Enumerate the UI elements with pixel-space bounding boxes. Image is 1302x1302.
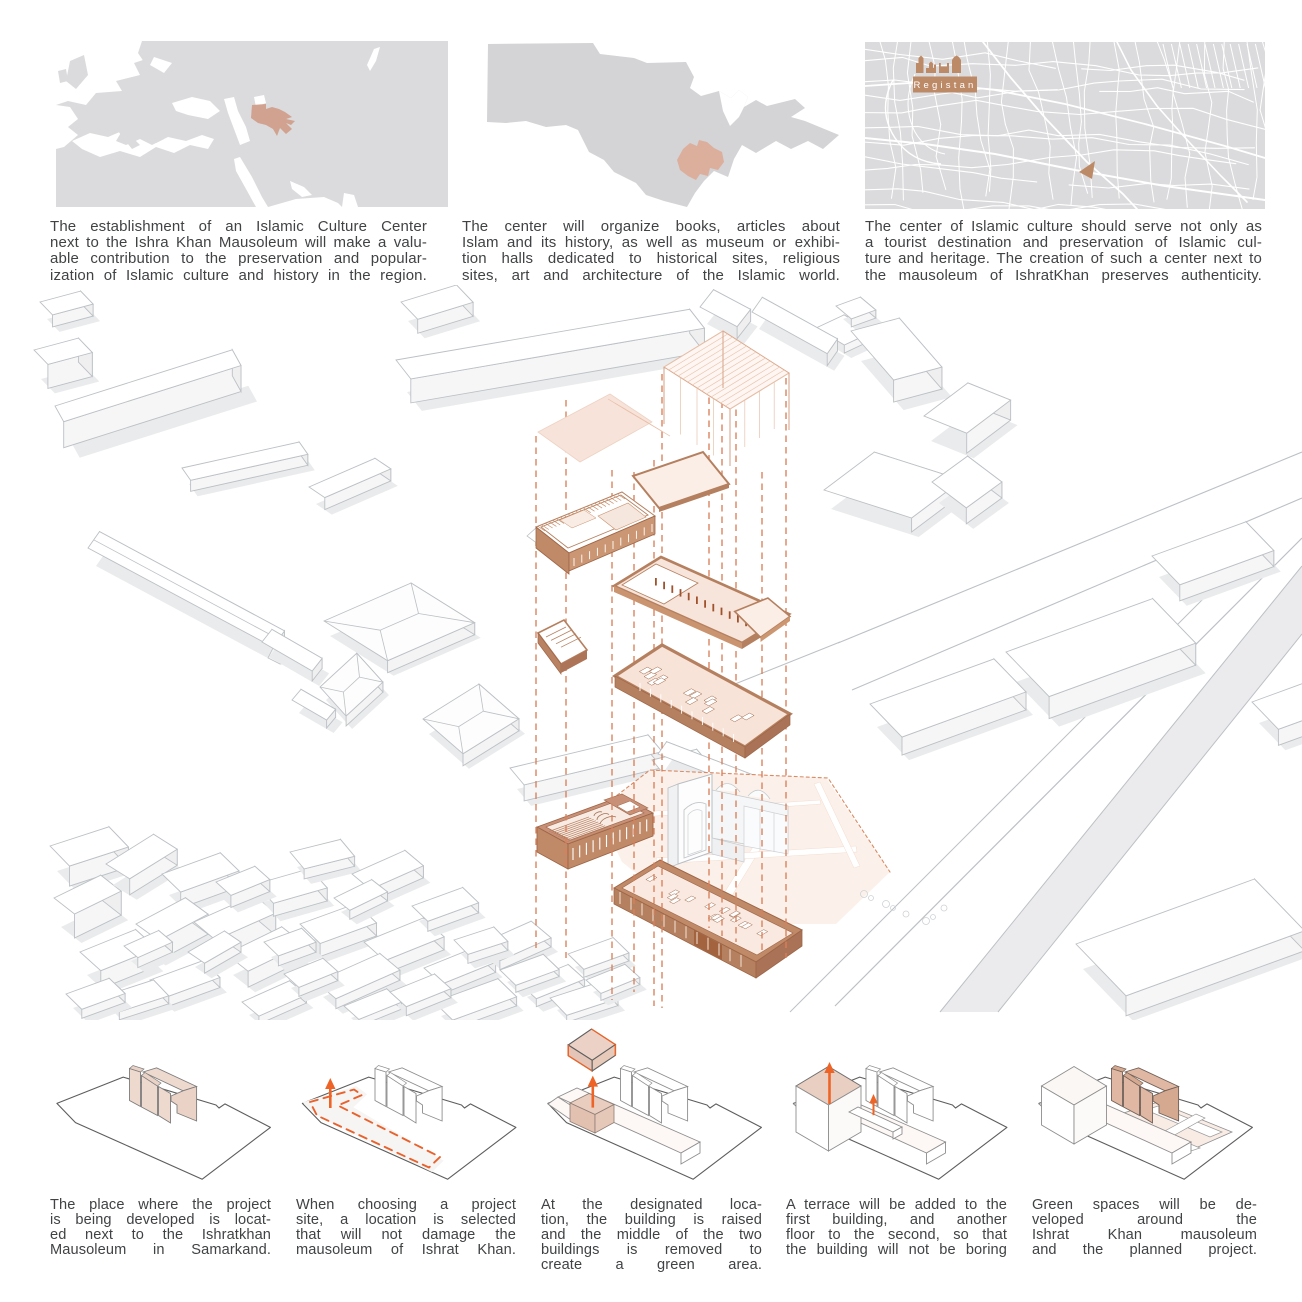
svg-text:Registan: Registan: [913, 80, 976, 91]
